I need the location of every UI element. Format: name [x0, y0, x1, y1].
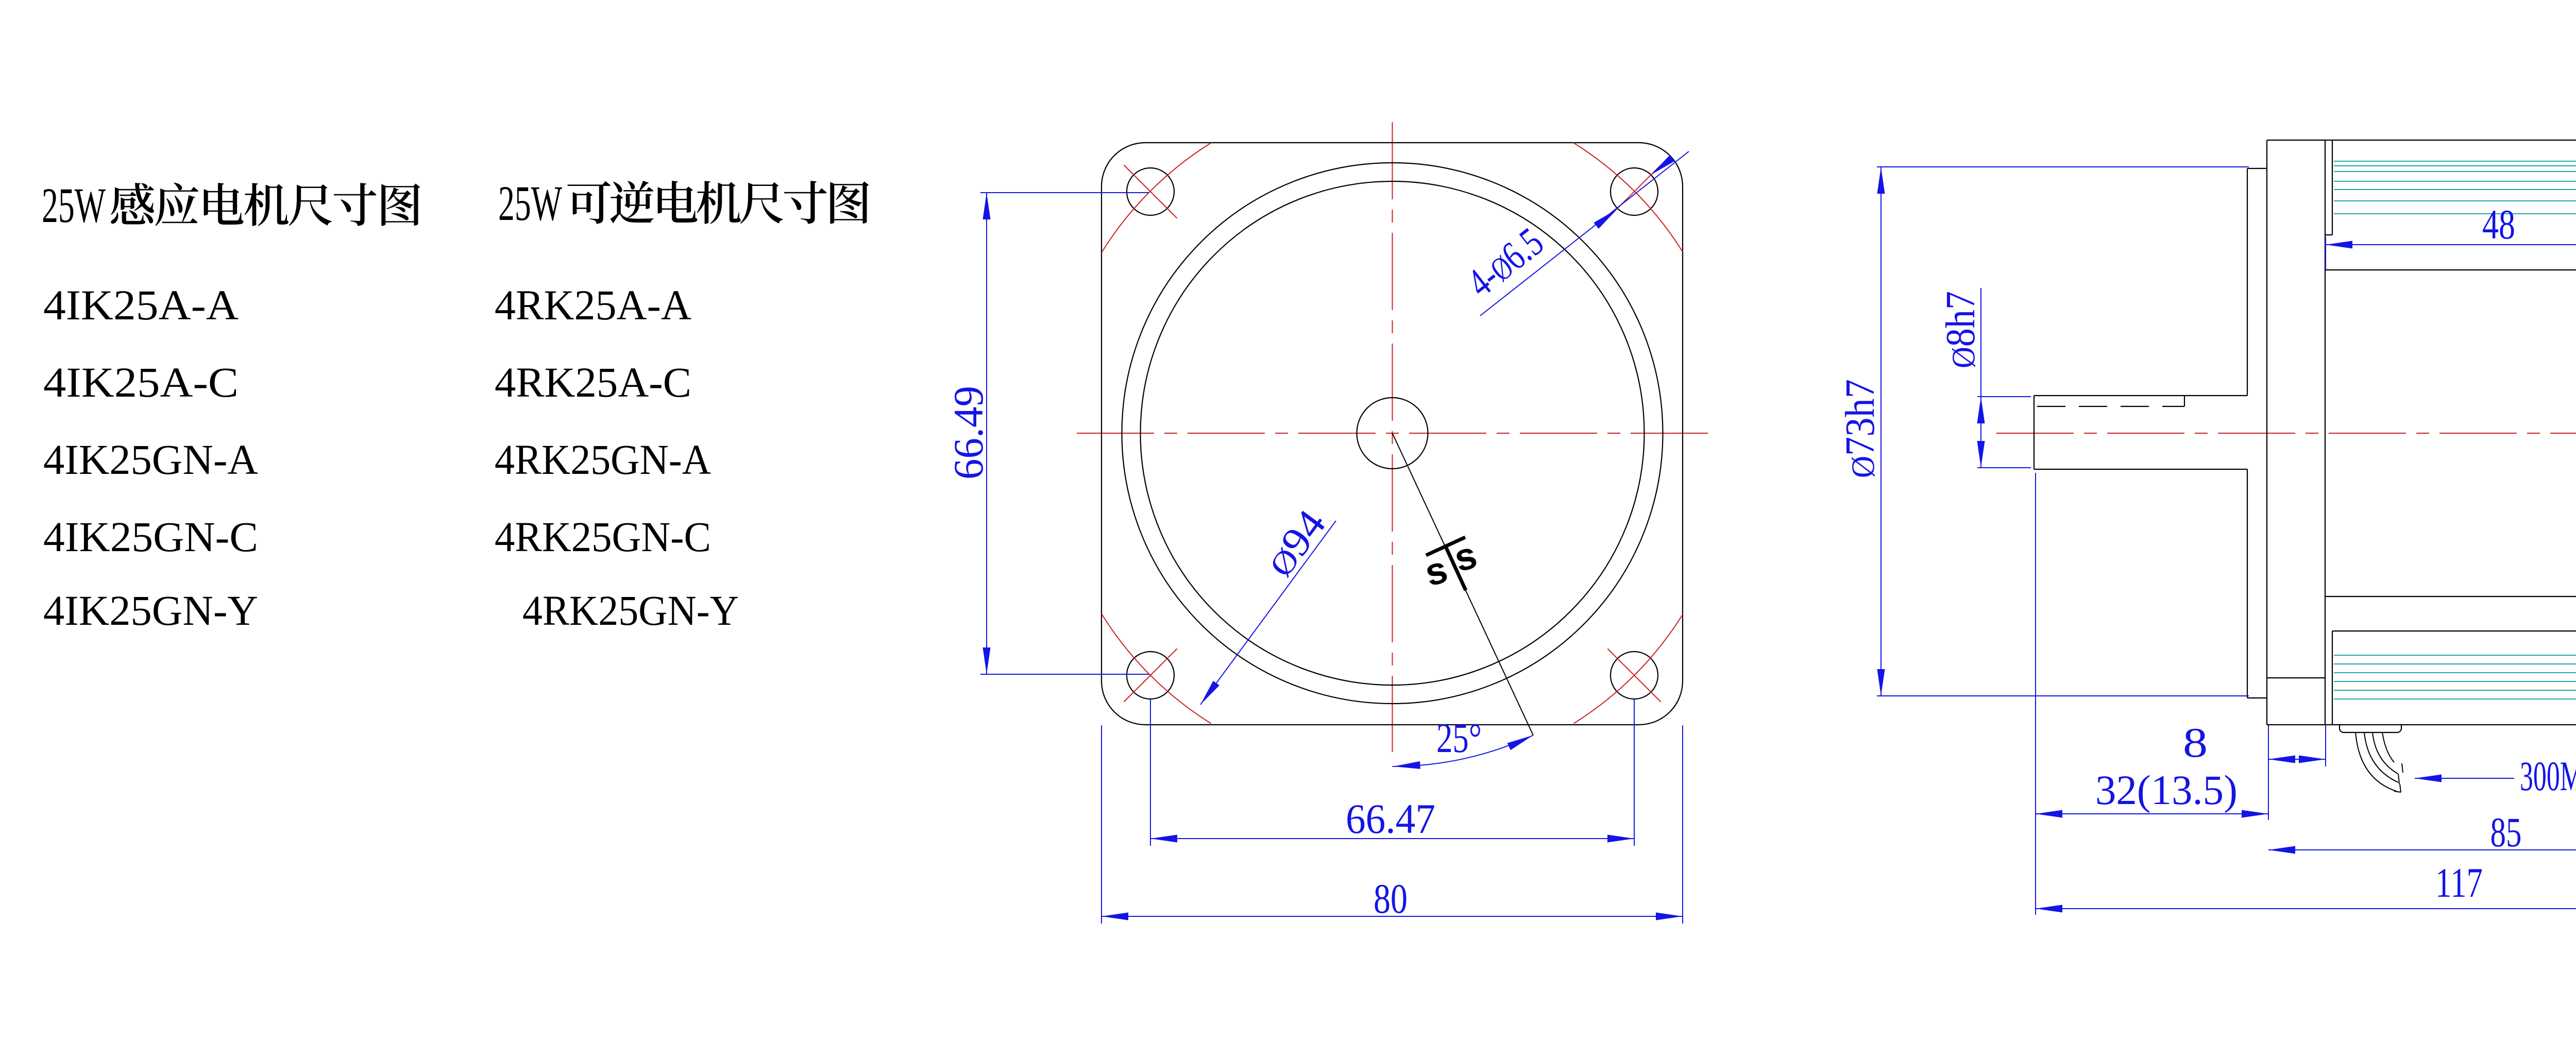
svg-text:4IK25A-A: 4IK25A-A — [43, 281, 239, 329]
svg-text:25°: 25° — [1436, 714, 1482, 761]
svg-text:4RK25GN-A: 4RK25GN-A — [495, 436, 711, 483]
svg-text:4RK25A-C: 4RK25A-C — [495, 359, 691, 406]
svg-text:45: 45 — [2567, 416, 2576, 449]
svg-text:4IK25A-C: 4IK25A-C — [43, 359, 239, 406]
svg-text:117: 117 — [2435, 859, 2483, 906]
svg-text:8: 8 — [2183, 719, 2208, 766]
svg-text:4RK25GN-Y: 4RK25GN-Y — [522, 587, 739, 634]
svg-text:66.49: 66.49 — [945, 386, 992, 480]
svg-text:Ø73h7: Ø73h7 — [1838, 379, 1883, 478]
svg-text:4IK25GN-Y: 4IK25GN-Y — [43, 587, 258, 634]
svg-text:85: 85 — [2490, 809, 2522, 856]
svg-text:4RK25GN-C: 4RK25GN-C — [495, 513, 711, 560]
svg-text:4IK25GN-A: 4IK25GN-A — [43, 436, 258, 483]
svg-text:4RK25A-A: 4RK25A-A — [495, 281, 691, 329]
svg-text:66.47: 66.47 — [1346, 795, 1435, 842]
svg-text:25W: 25W — [498, 176, 562, 231]
svg-text:80: 80 — [1374, 875, 1408, 922]
svg-text:300MM: 300MM — [2520, 753, 2576, 799]
svg-text:32(13.5): 32(13.5) — [2095, 766, 2238, 813]
svg-text:25W: 25W — [42, 178, 106, 233]
svg-text:Ø8h7: Ø8h7 — [1938, 291, 1984, 368]
svg-text:4IK25GN-C: 4IK25GN-C — [43, 513, 258, 560]
svg-text:48: 48 — [2482, 201, 2515, 248]
